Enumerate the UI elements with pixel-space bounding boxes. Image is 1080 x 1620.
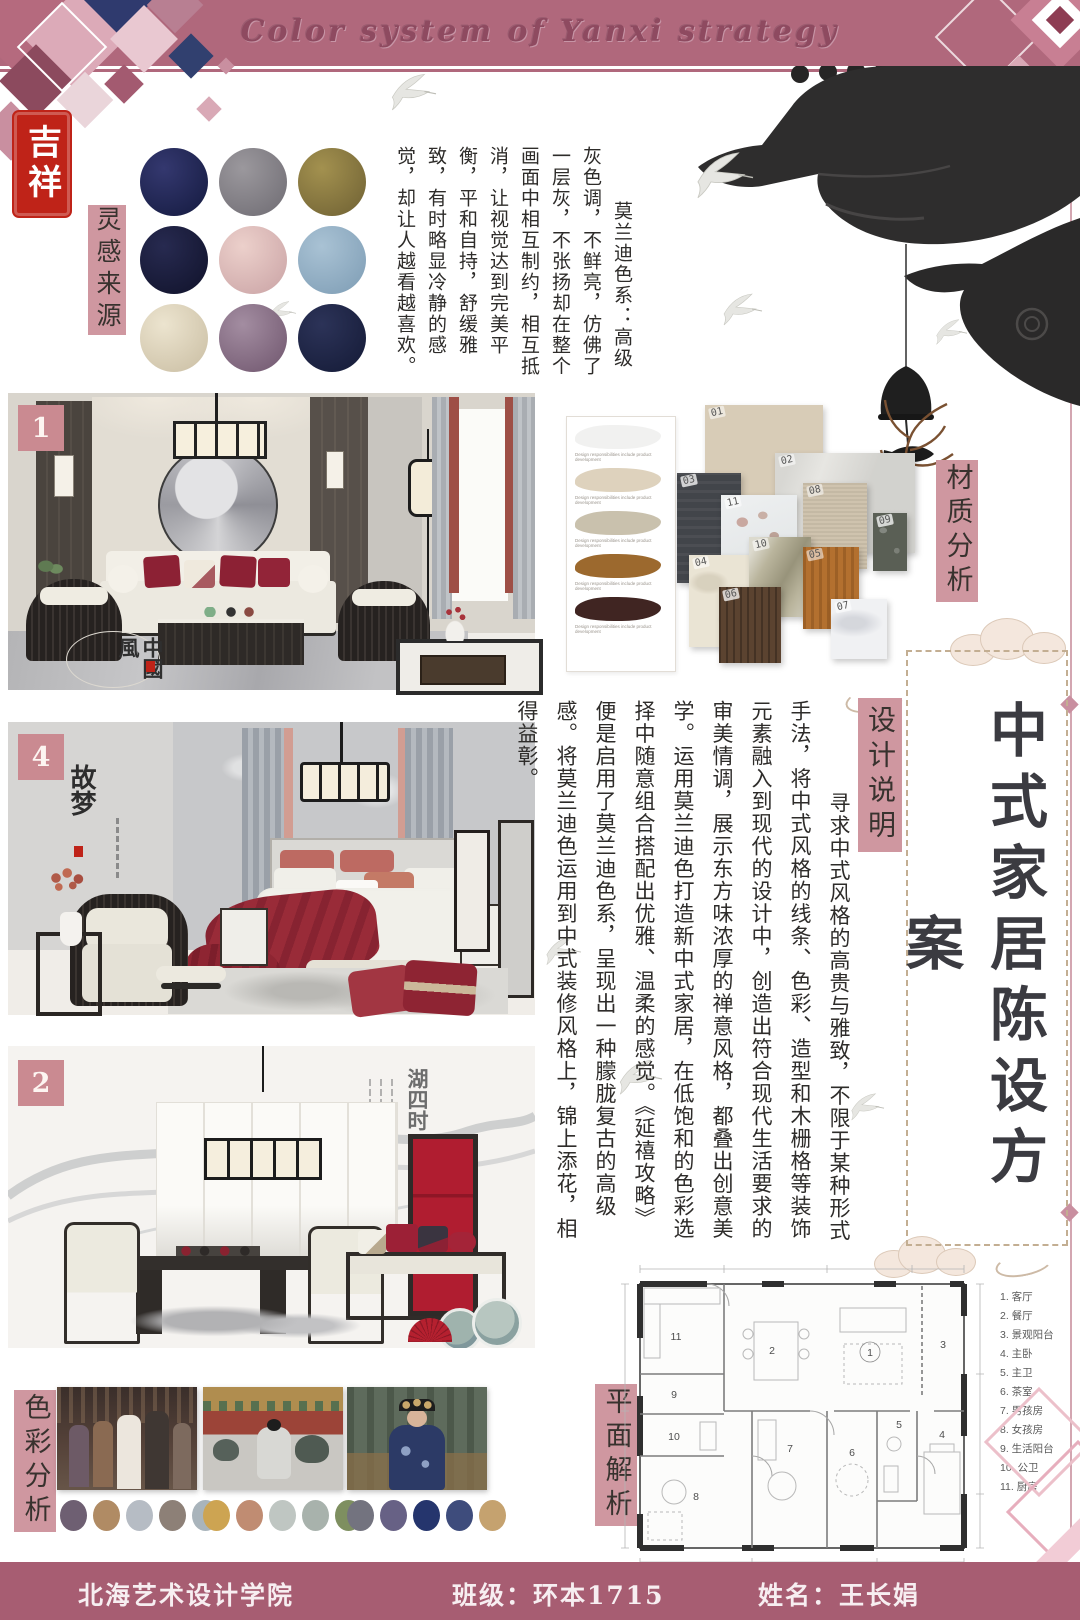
calligraphy-bedroom: 故梦 (66, 764, 96, 842)
plate-2 (472, 1298, 522, 1348)
still-photo-2 (203, 1387, 343, 1490)
swatch-number: 03 (680, 473, 698, 487)
morandi-note: 莫兰迪色系：高级灰色调，不鲜亮，仿佛了一层灰，不张扬却在整个画面中相互制约，相互… (385, 146, 637, 386)
sofa-pillow-white-left (108, 565, 138, 593)
calligraphy-living: 中國風 (116, 637, 164, 687)
palette-row-3 (347, 1500, 506, 1531)
swatch-number: 10 (752, 537, 770, 551)
nightstand-left (220, 908, 268, 966)
daybed-pillow-dark (418, 1226, 448, 1252)
swatch-number: 07 (834, 599, 852, 613)
svg-text:6: 6 (849, 1447, 855, 1459)
inscription-column (116, 818, 119, 878)
figure-a (69, 1425, 89, 1487)
floor-pillow-red-2 (402, 960, 477, 1017)
palette-color-dot (236, 1500, 263, 1531)
palette-color-dot (203, 1500, 230, 1531)
sofa-pillow-red-3 (258, 558, 290, 587)
class-label: 班级：环本1715 (452, 1576, 665, 1612)
swatch-number: 02 (778, 453, 796, 467)
red-seal-dot (146, 661, 155, 672)
daybed-pillow-white (358, 1230, 386, 1254)
material-analysis-label: 材质分析 (936, 460, 978, 602)
console-cabinet (420, 655, 506, 685)
fabric-photo-circle (298, 148, 366, 216)
palette-color-dot (413, 1500, 440, 1531)
daybed-bolster (448, 1232, 476, 1252)
tea-tray (176, 1246, 260, 1256)
paint-smear-item: Design responsibilities include product … (575, 554, 667, 591)
design-note-label: 设计说明 (858, 698, 902, 852)
paint-smear (575, 425, 661, 449)
material-swatch-06: 06 (719, 587, 781, 663)
inspiration-grid (140, 148, 368, 384)
sofa-pillow-red-2 (219, 555, 257, 588)
ink-rug (88, 1298, 368, 1344)
vase (60, 912, 82, 946)
fabric-photo-circle (298, 226, 366, 294)
window (452, 409, 508, 601)
legend-item: 4. 主卧 (1000, 1345, 1076, 1364)
legend-item: 1. 客厅 (1000, 1288, 1076, 1307)
chandelier-stem (215, 393, 218, 423)
palette-color-dot (93, 1500, 120, 1531)
footer-bar: 北海艺术设计学院 班级：环本1715 姓名：王长娟 (0, 1562, 1080, 1620)
paint-smear-item: Design responsibilities include product … (575, 425, 667, 462)
fabric-photo-circle (219, 148, 287, 216)
paint-caption: Design responsibilities include product … (575, 538, 667, 548)
svg-text:5: 5 (896, 1419, 902, 1431)
main-title: 中式家居陈设方案 (916, 668, 1056, 1228)
paint-caption: Design responsibilities include product … (575, 624, 667, 634)
chandelier (173, 421, 267, 459)
paint-smear-item: Design responsibilities include product … (575, 511, 667, 548)
living-room-render: 中國風 1 (8, 393, 535, 690)
palette-color-dot (380, 1500, 407, 1531)
floor-plan: 1 2 3 4 5 6 7 8 9 10 11 (612, 1256, 994, 1570)
still-photo-3 (347, 1387, 487, 1490)
daybed-pillow-red (386, 1224, 418, 1252)
tall-stand (454, 830, 490, 952)
figure-b (93, 1421, 113, 1487)
legend-item: 2. 餐厅 (1000, 1307, 1076, 1326)
paint-smear-item: Design responsibilities include product … (575, 468, 667, 505)
figure-hair (267, 1419, 281, 1431)
fabric-photo-circle (298, 304, 366, 372)
swatch-number: 06 (722, 587, 740, 601)
material-swatch-07: 07 (831, 599, 887, 659)
svg-text:4: 4 (939, 1429, 945, 1441)
bronze-vat-2 (213, 1439, 239, 1461)
paint-smear (575, 554, 661, 578)
color-analysis-label: 色彩分析 (14, 1390, 56, 1532)
swatch-number: 04 (692, 555, 710, 569)
swatch-number: 08 (806, 483, 824, 497)
curtain-right (513, 397, 535, 619)
svg-text:3: 3 (940, 1339, 946, 1351)
sofa-pillow-white-right (298, 565, 328, 593)
navy-gown-figure (389, 1425, 445, 1490)
paint-caption: Design responsibilities include product … (575, 581, 667, 591)
student-name: 姓名：王长娟 (758, 1576, 920, 1612)
auspicious-seal: 吉祥 (14, 112, 70, 216)
svg-text:1: 1 (867, 1347, 873, 1359)
bronze-vat-1 (295, 1435, 329, 1463)
roof-detail (203, 1401, 343, 1411)
vase-red-berries (440, 607, 470, 641)
paint-caption: Design responsibilities include product … (575, 495, 667, 505)
paint-smear-card-list: Design responsibilities include product … (575, 425, 667, 634)
svg-text:2: 2 (769, 1345, 775, 1357)
seal-text: 吉祥 (18, 124, 67, 204)
fabric-photo-circle (219, 226, 287, 294)
sofa-pillow-red-1 (143, 555, 181, 588)
palette-color-dot (60, 1500, 87, 1531)
swatch-number: 01 (708, 405, 726, 419)
living-room-panel: 中國風 1 (8, 393, 535, 690)
palette-color-dot (302, 1500, 329, 1531)
chandelier-pole (340, 722, 343, 764)
material-swatch-09: 09 (873, 513, 907, 571)
swatch-number: 09 (876, 513, 894, 527)
lower-eave (904, 218, 1080, 406)
figure-c (173, 1423, 191, 1489)
paint-smear (575, 597, 661, 621)
chair-cushion-left (40, 587, 108, 605)
svg-text:9: 9 (671, 1389, 677, 1401)
ottoman (156, 966, 226, 982)
swatch-number: 05 (806, 547, 824, 561)
chair-cushion-right (352, 589, 416, 606)
red-seal-dot-bedroom (74, 846, 83, 857)
paint-smear-item: Design responsibilities include product … (575, 597, 667, 634)
pillow-rose-2 (340, 850, 394, 872)
coffee-table (158, 619, 304, 665)
palette-color-dot (269, 1500, 296, 1531)
palette-color-dot (347, 1500, 374, 1531)
vase-flowers (42, 868, 98, 918)
palette-color-dot (126, 1500, 153, 1531)
bonsai (38, 559, 64, 577)
fabric-photo-circle (140, 226, 208, 294)
legend-item: 3. 景观阳台 (1000, 1326, 1076, 1345)
svg-text:10: 10 (668, 1431, 680, 1443)
palette-color-dot (159, 1500, 186, 1531)
headdress (399, 1399, 435, 1411)
school-name: 北海艺术设计学院 (78, 1576, 294, 1612)
curtain-red-accent (449, 397, 459, 593)
bedroom-panel: 故梦 (8, 722, 535, 1015)
palette-color-dot (479, 1500, 506, 1531)
svg-text:11: 11 (671, 1331, 682, 1343)
swatch-number: 11 (724, 495, 742, 509)
svg-text:8: 8 (693, 1491, 699, 1503)
chandelier-bedroom (300, 762, 390, 802)
sofa-pillow-print (184, 560, 215, 588)
palette-row-2 (203, 1500, 362, 1531)
paint-smear (575, 511, 661, 535)
tea-set (204, 607, 264, 617)
paint-smear (575, 468, 661, 492)
inspiration-label: 灵感来源 (88, 205, 126, 335)
fabric-photo-circle (140, 148, 208, 216)
fabric-photo-circle (219, 304, 287, 372)
section-number-1: 1 (18, 405, 64, 451)
wall-lamp (54, 455, 74, 497)
chandelier-dining (204, 1138, 322, 1180)
design-note-text: 寻求中式风格的高贵与雅致，不限于某种形式手法，将中式风格的线条、色彩、造型和木栅… (546, 700, 858, 1248)
still-photo-1 (57, 1387, 197, 1490)
paint-caption: Design responsibilities include product … (575, 452, 667, 462)
legend-item: 5. 主卫 (1000, 1364, 1076, 1383)
dining-room-panel: 湖四时 2 (8, 1046, 535, 1348)
section-number-2: 2 (18, 1060, 64, 1106)
fabric-photo-circle (140, 304, 208, 372)
dining-room-render: 湖四时 2 (8, 1046, 535, 1348)
section-number-4: 4 (18, 734, 64, 780)
swirl-decor-2 (993, 1246, 1055, 1282)
wall-lamp-2 (326, 451, 344, 489)
seated-figure (257, 1427, 291, 1479)
palette-row-1 (60, 1500, 219, 1531)
bedroom-render: 故梦 (8, 722, 535, 1015)
design-poster: Color system of Yanxi strategy (0, 0, 1080, 1620)
figure-male (145, 1411, 169, 1489)
svg-text:7: 7 (787, 1443, 793, 1455)
figure-white-dress (117, 1415, 141, 1489)
marble-circle-art (158, 445, 278, 565)
chandelier-pole-dining (262, 1046, 264, 1092)
palette-color-dot (446, 1500, 473, 1531)
figure-face (407, 1409, 427, 1427)
